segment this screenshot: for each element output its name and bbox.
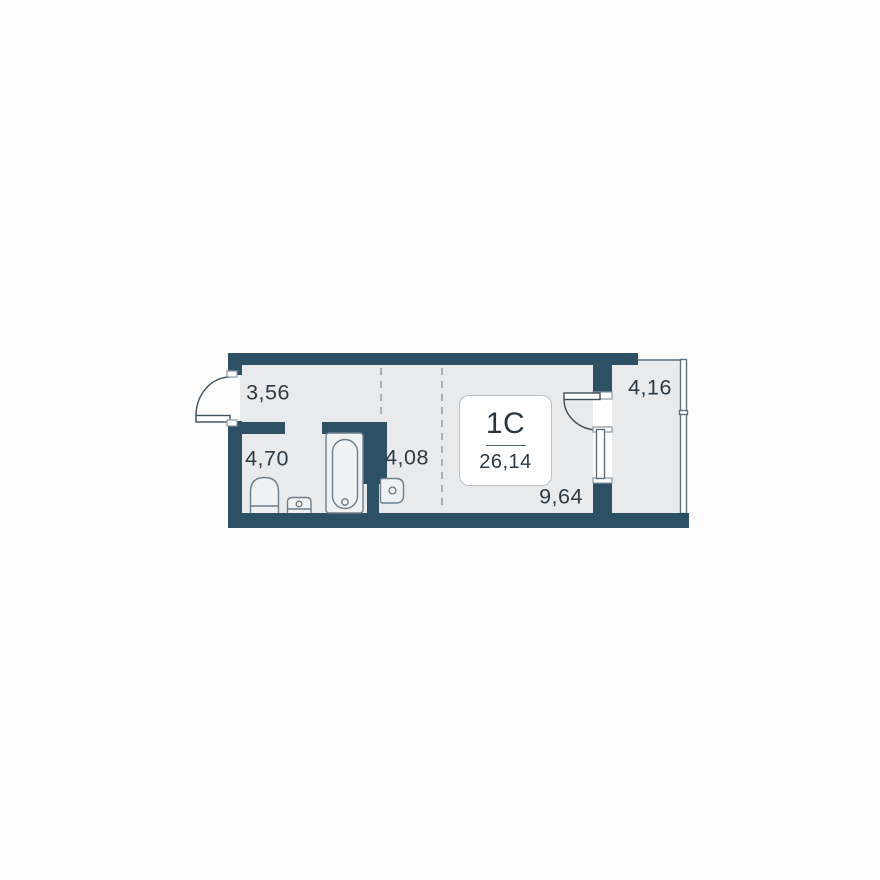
area-label-living-zone: 9,64 (539, 485, 583, 510)
unit-type-label: 1C (486, 409, 525, 439)
unit-info-card: 1C 26,14 (459, 395, 552, 486)
floorplan-drawing (0, 0, 880, 880)
area-label-balcony: 4,16 (628, 376, 672, 401)
entrance-door-leaf (196, 416, 230, 423)
balcony-door-leaf (564, 393, 600, 400)
area-label-kitchen-zone: 4,08 (385, 446, 429, 471)
floorplan-canvas: 3,56 4,70 4,08 9,64 4,16 1C 26,14 (0, 0, 880, 880)
door-jamb-icon (227, 371, 237, 377)
toilet-icon (251, 478, 279, 514)
door-jamb-icon (227, 420, 237, 426)
unit-total-area: 26,14 (479, 452, 532, 472)
area-label-hallway: 3,56 (246, 381, 290, 406)
area-label-bathroom: 4,70 (245, 447, 289, 472)
unit-card-divider (486, 445, 526, 446)
entrance-door (196, 371, 237, 426)
